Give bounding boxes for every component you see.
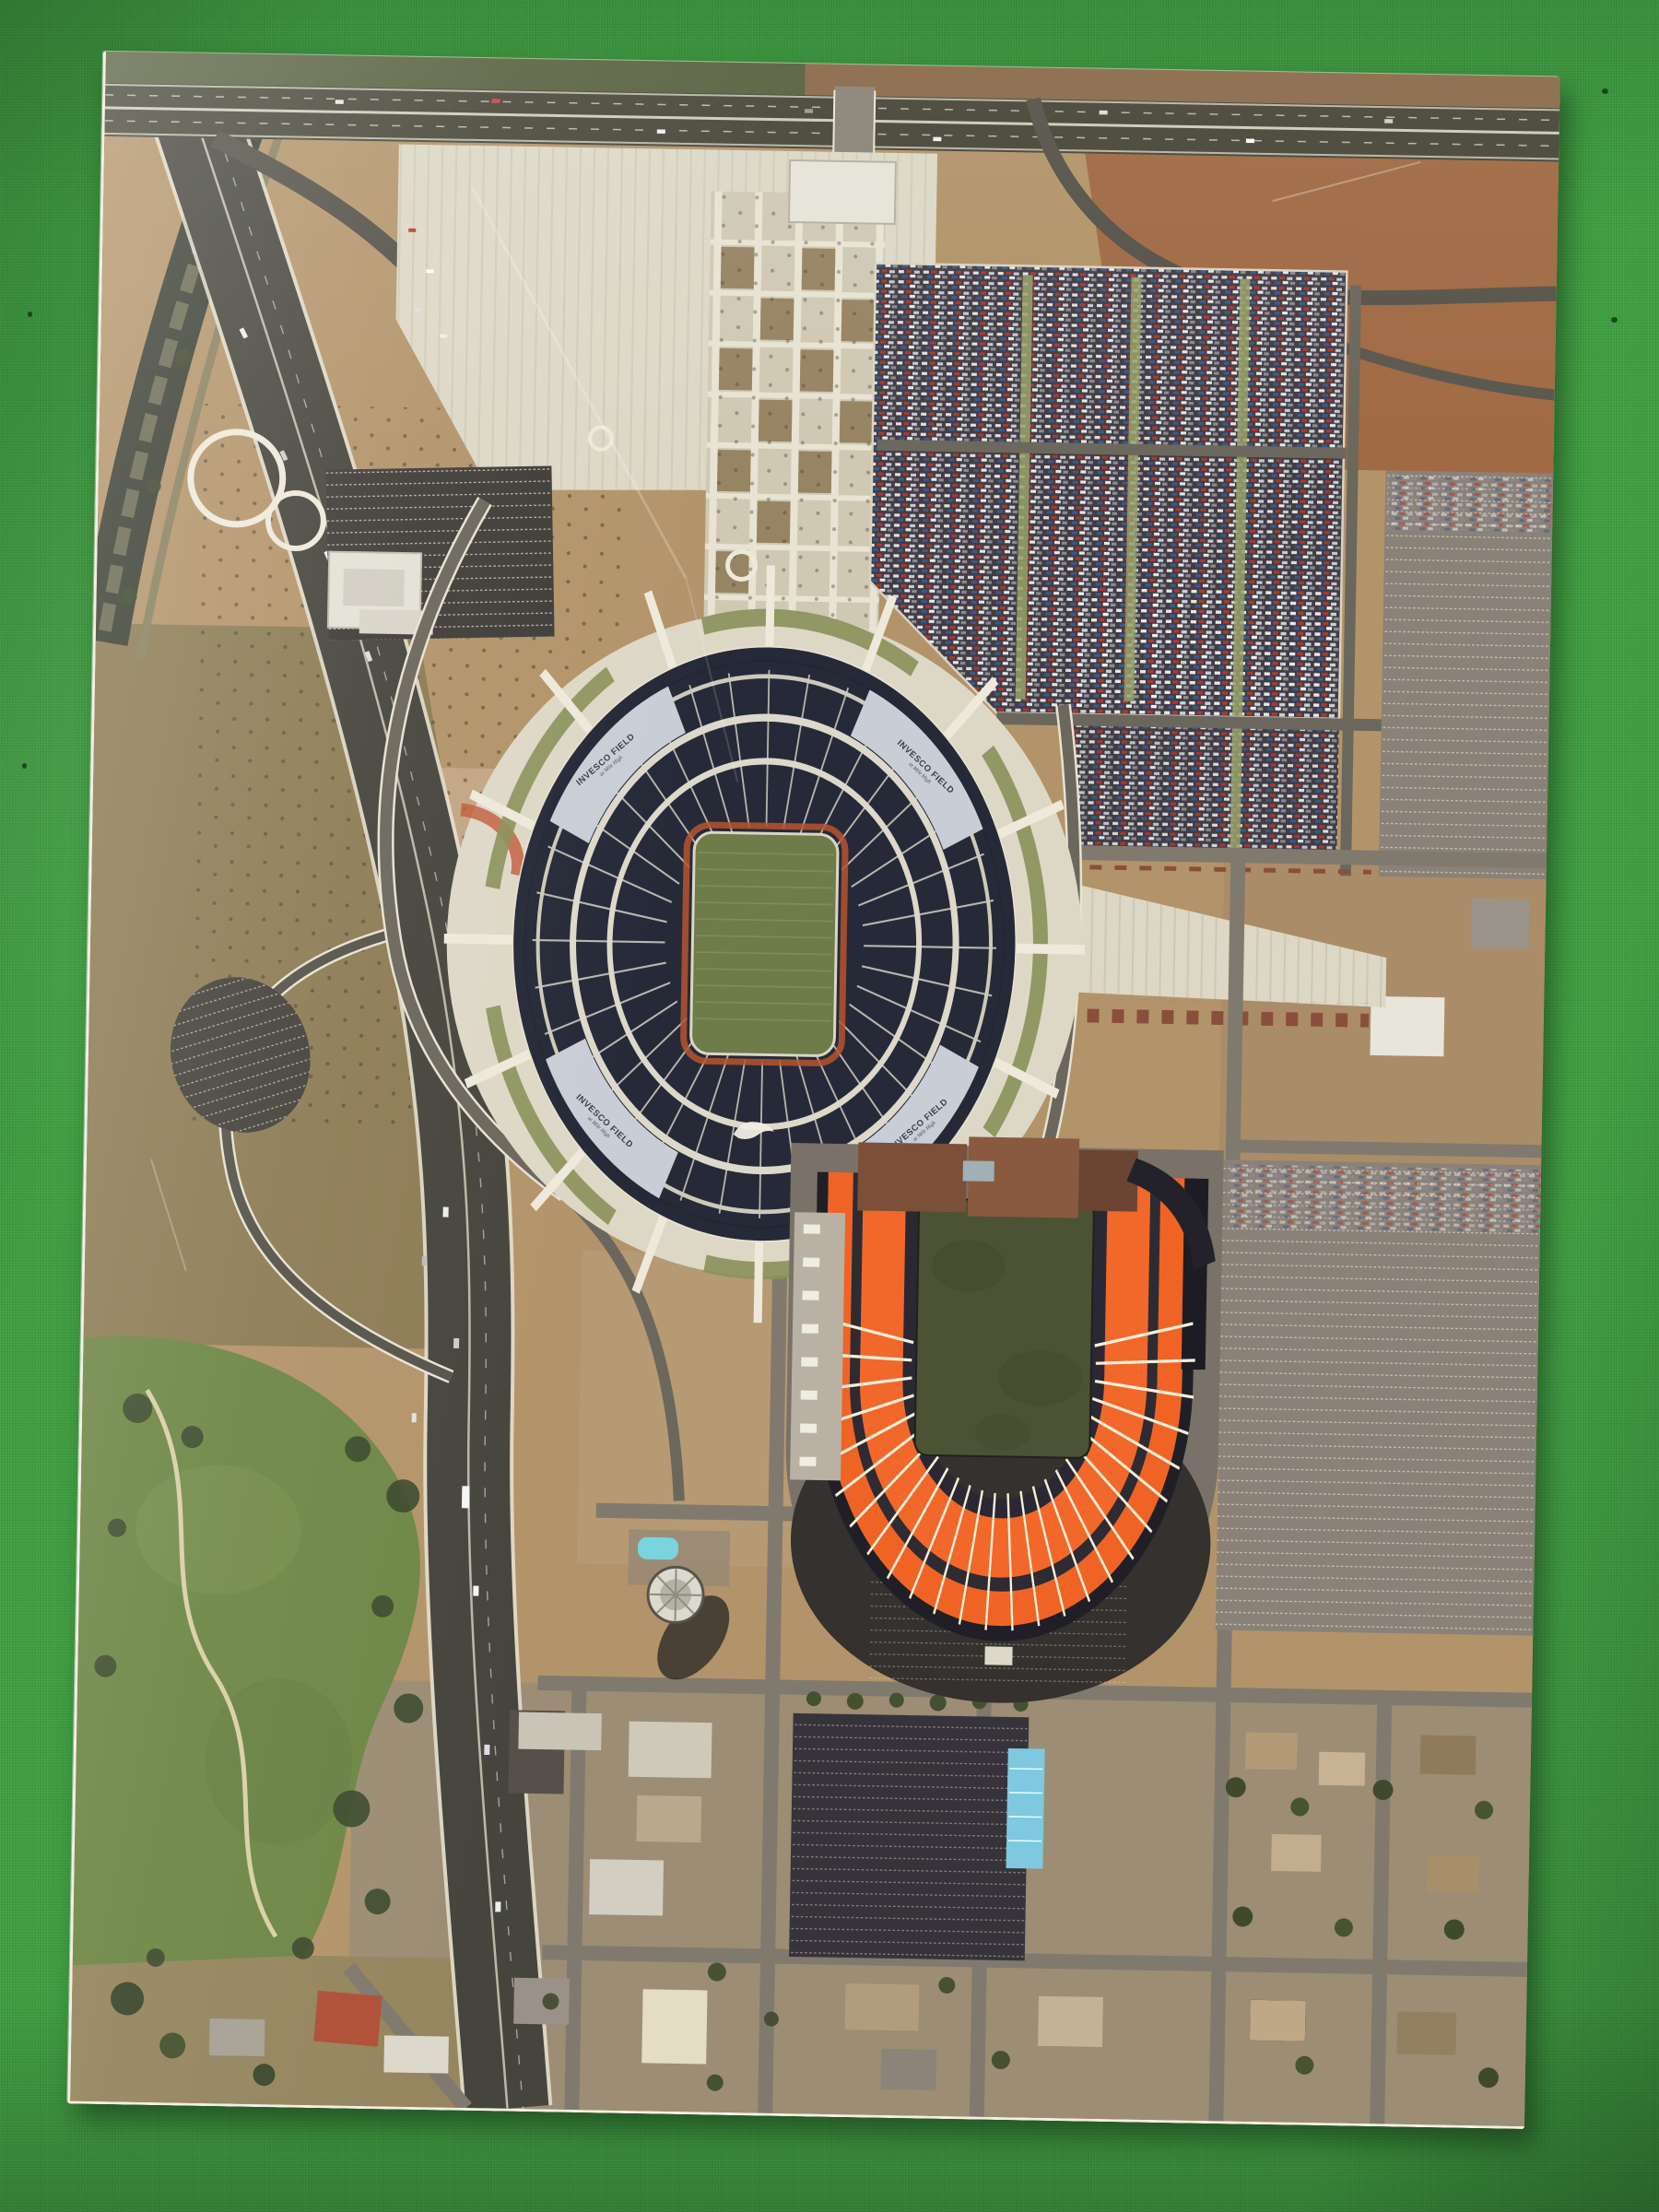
football-field-upper xyxy=(690,832,838,1056)
blue-roof-building xyxy=(1006,1748,1044,1869)
fabric-speck xyxy=(1611,317,1618,323)
swimming-pool xyxy=(638,1537,678,1560)
gate-building xyxy=(789,160,896,224)
truck xyxy=(462,1486,469,1508)
cream-building xyxy=(641,1989,707,2064)
dark-parking-lot-south xyxy=(789,1691,1046,1961)
aerial-photo-print: INVESCO FIELD at Mile High INVESCO FIELD… xyxy=(67,52,1560,2129)
overpass-bridge xyxy=(833,87,875,156)
northwest-parking-block xyxy=(324,462,558,644)
scene: INVESCO FIELD at Mile High INVESCO FIELD… xyxy=(0,0,1659,2212)
gray-roof-shed xyxy=(963,1160,994,1182)
red-roof-building xyxy=(313,1991,382,2047)
gray-building xyxy=(1471,899,1529,949)
lower-stadium-old-mile-high xyxy=(782,1134,1542,1712)
west-ramp-towers xyxy=(790,1212,845,1480)
aerial-photo-svg: INVESCO FIELD at Mile High INVESCO FIELD… xyxy=(70,52,1560,2126)
fabric-speck xyxy=(1602,88,1608,94)
fabric-speck xyxy=(22,763,27,769)
south-gate xyxy=(984,1646,1012,1665)
fabric-speck xyxy=(28,312,32,317)
